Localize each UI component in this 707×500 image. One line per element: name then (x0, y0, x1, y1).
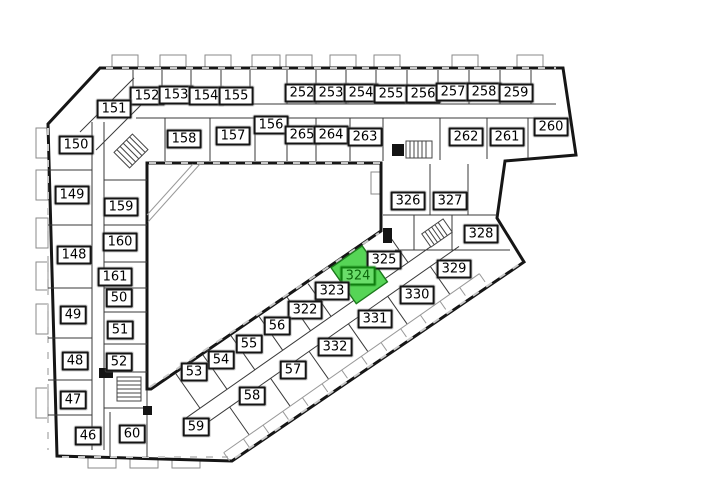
room-label-263[interactable]: 263 (348, 128, 383, 147)
room-label-326[interactable]: 326 (391, 192, 426, 211)
room-label-50[interactable]: 50 (106, 289, 133, 308)
room-label-51[interactable]: 51 (107, 321, 134, 340)
room-label-156[interactable]: 156 (254, 116, 289, 135)
room-label-158[interactable]: 158 (167, 130, 202, 149)
room-label-151[interactable]: 151 (97, 100, 132, 119)
room-label-262[interactable]: 262 (449, 128, 484, 147)
room-label-161[interactable]: 161 (98, 268, 133, 287)
room-label-59[interactable]: 59 (183, 418, 210, 437)
room-label-49[interactable]: 49 (60, 306, 87, 325)
room-label-159[interactable]: 159 (104, 198, 139, 217)
room-label-259[interactable]: 259 (499, 84, 534, 103)
room-label-60[interactable]: 60 (119, 425, 146, 444)
room-label-58[interactable]: 58 (239, 387, 266, 406)
room-label-56[interactable]: 56 (264, 317, 291, 336)
room-label-257[interactable]: 257 (436, 83, 471, 102)
room-labels-layer: 1521531541552522532542552562572582591511… (0, 0, 707, 500)
room-label-327[interactable]: 327 (433, 192, 468, 211)
room-label-331[interactable]: 331 (358, 310, 393, 329)
room-label-322[interactable]: 322 (288, 301, 323, 320)
room-label-53[interactable]: 53 (181, 363, 208, 382)
room-label-157[interactable]: 157 (216, 127, 251, 146)
room-label-330[interactable]: 330 (400, 286, 435, 305)
room-label-261[interactable]: 261 (490, 128, 525, 147)
room-label-54[interactable]: 54 (208, 351, 235, 370)
room-label-55[interactable]: 55 (236, 335, 263, 354)
floor-plan-canvas: 1521531541552522532542552562572582591511… (0, 0, 707, 500)
room-label-148[interactable]: 148 (57, 246, 92, 265)
room-label-155[interactable]: 155 (219, 87, 254, 106)
room-label-160[interactable]: 160 (103, 233, 138, 252)
room-label-48[interactable]: 48 (62, 352, 89, 371)
room-label-52[interactable]: 52 (106, 353, 133, 372)
room-label-328[interactable]: 328 (464, 225, 499, 244)
room-label-332[interactable]: 332 (318, 338, 353, 357)
room-label-46[interactable]: 46 (75, 427, 102, 446)
room-label-329[interactable]: 329 (437, 260, 472, 279)
room-label-149[interactable]: 149 (55, 186, 90, 205)
room-label-264[interactable]: 264 (314, 126, 349, 145)
room-label-47[interactable]: 47 (60, 391, 87, 410)
room-label-255[interactable]: 255 (374, 85, 409, 104)
room-label-57[interactable]: 57 (280, 361, 307, 380)
room-label-260[interactable]: 260 (534, 118, 569, 137)
room-label-150[interactable]: 150 (59, 136, 94, 155)
room-label-258[interactable]: 258 (467, 83, 502, 102)
room-label-323[interactable]: 323 (315, 282, 350, 301)
